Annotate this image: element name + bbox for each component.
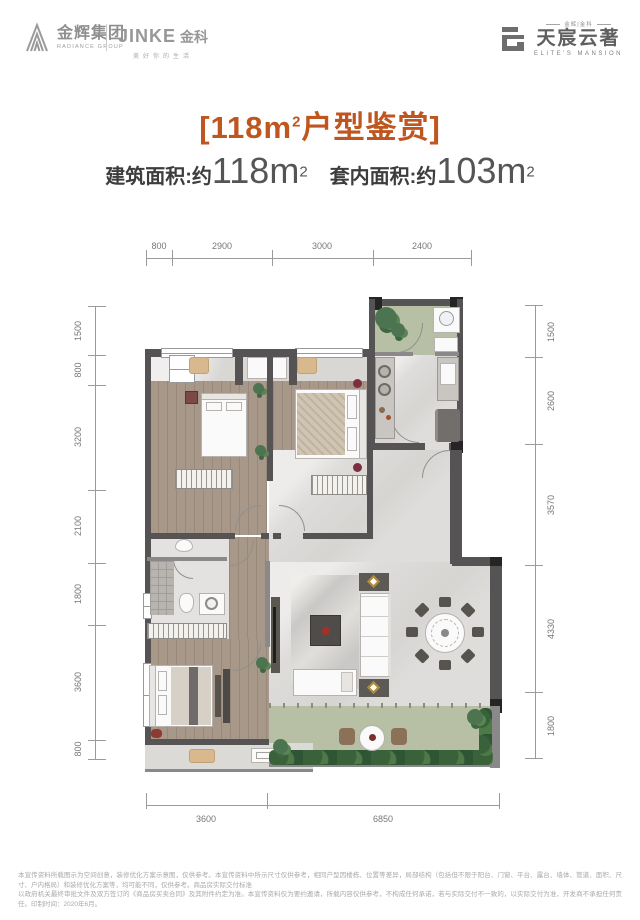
chaise-pillow xyxy=(341,672,353,692)
jinke-suffix: 金科 xyxy=(180,27,208,47)
mansion-logo: 金辉|金科 天宸云著 ELITE'S MANSION xyxy=(502,20,623,57)
bedroom2-headboard xyxy=(359,389,367,459)
terrace-chair-left xyxy=(339,728,355,745)
service-balcony-plant-small xyxy=(391,323,405,337)
dining-chair-e xyxy=(472,627,484,637)
service-sink xyxy=(434,337,458,352)
bedroom2-wardrobe xyxy=(311,475,367,495)
mansion-top-rule-right xyxy=(597,24,611,25)
living-plant xyxy=(256,657,268,669)
radiance-name: 金辉集团 xyxy=(57,25,125,42)
washing-machine-drum xyxy=(439,311,454,326)
wall-east-lower xyxy=(490,566,502,713)
counter-prop2 xyxy=(386,415,391,420)
inner-area-value: 103m xyxy=(436,150,526,191)
wall-service-divider-b xyxy=(435,352,459,356)
dim-right-1500: 1500 xyxy=(546,310,556,354)
dining-chair-s xyxy=(439,660,451,670)
disclaimer-line2: 以政府机关最终审批文件及双方签订的《商品房买卖合同》及其附件约定为准。本宣传资料… xyxy=(18,890,622,909)
niche-wall-left xyxy=(235,349,243,385)
inner-area-label: 套内面积:约 xyxy=(330,166,437,188)
wall-hall-living xyxy=(265,561,270,647)
dim-top-2900: 2900 xyxy=(200,241,244,251)
master-decor xyxy=(151,729,162,738)
dim-left-800b: 800 xyxy=(73,727,83,771)
mansion-top-rule-left xyxy=(546,24,560,25)
dim-left-3200: 3200 xyxy=(73,415,83,459)
burner-front xyxy=(378,365,391,378)
jinke-slogan: 美好你的生活 xyxy=(118,51,208,60)
master-headboard xyxy=(149,665,156,727)
terrace-chair-right xyxy=(391,728,407,745)
dim-right-4330: 4330 xyxy=(546,607,556,651)
terrace-table-decor xyxy=(369,734,376,741)
bedroom2-pillow-b xyxy=(347,427,357,451)
bedroom1-wardrobe xyxy=(175,469,233,489)
dim-left-1500: 1500 xyxy=(73,309,83,353)
dim-left-2100: 2100 xyxy=(73,504,83,548)
terrace-plant-b xyxy=(467,709,483,725)
built-area-value: 118m xyxy=(212,150,299,191)
dining-centerpiece xyxy=(441,629,449,637)
niche-wall-right xyxy=(289,349,297,385)
dim-line-top xyxy=(146,258,471,259)
disclaimer: 本宣传资料所载图示为空间创意，装修优化方案示意图，仅供参考。本宣传资料中所示尺寸… xyxy=(18,871,622,909)
mansion-brand-line: 金辉|金科 xyxy=(564,20,592,28)
dim-right-3570: 3570 xyxy=(546,483,556,527)
dim-top-2400: 2400 xyxy=(400,241,444,251)
radiance-group-logo: 金辉集团 RADIANCE GROUP xyxy=(24,22,125,52)
wall-master-south xyxy=(145,739,269,745)
wall-bedroom-divider xyxy=(267,349,273,481)
porch-edge xyxy=(145,769,313,772)
dim-left-1800: 1800 xyxy=(73,572,83,616)
dim-right-1800: 1800 xyxy=(546,704,556,748)
wall-bedroom2-south xyxy=(303,533,369,539)
bedroom1-plant2 xyxy=(255,445,266,456)
coffee-table-flowers xyxy=(322,627,330,635)
dim-top-3000: 3000 xyxy=(300,241,344,251)
dim-bottom-3600: 3600 xyxy=(184,814,228,824)
wall-stub-a xyxy=(261,533,269,539)
tv-screen xyxy=(273,607,276,663)
shower xyxy=(150,561,174,615)
dining-chair-w xyxy=(406,627,418,637)
dim-left-3600: 3600 xyxy=(73,660,83,704)
radiance-chevron-icon xyxy=(24,22,50,52)
mansion-mark-icon xyxy=(502,27,528,51)
basin xyxy=(205,597,218,610)
dining-chair-n xyxy=(439,597,451,607)
dim-line-left xyxy=(95,306,96,759)
bedroom2-pillow-a xyxy=(347,395,357,419)
bedroom2-blanket xyxy=(297,393,345,455)
dim-line-right xyxy=(535,305,536,758)
master-pillow-a xyxy=(158,671,167,691)
wall-service-divider-a xyxy=(375,352,413,356)
bedroom1-plant xyxy=(253,383,264,394)
mansion-name: 天宸云著 xyxy=(534,28,623,49)
area-summary: 建筑面积:约118m2套内面积:约103m2 xyxy=(0,150,640,192)
wall-east-upper xyxy=(450,450,462,564)
mansion-subtitle: ELITE'S MANSION xyxy=(534,51,623,57)
page-title: [118m2户型鉴赏] xyxy=(0,102,640,147)
master-wardrobe xyxy=(147,623,227,639)
kitchen-sink xyxy=(440,363,456,385)
master-pillow-b xyxy=(158,695,167,715)
counter-prop xyxy=(379,407,385,413)
dim-left-800: 800 xyxy=(73,348,83,392)
radiance-subtitle: RADIANCE GROUP xyxy=(57,44,125,50)
floor-plan xyxy=(145,295,505,772)
fridge xyxy=(435,409,460,442)
dim-right-2600: 2600 xyxy=(546,379,556,423)
flyer-page: 金辉集团 RADIANCE GROUP JINKE 金科 美好你的生活 金辉|金… xyxy=(0,0,640,920)
sofa xyxy=(360,593,391,677)
bedroom1-dresser xyxy=(185,391,198,404)
master-tv-cabinet xyxy=(223,669,230,723)
jinke-logo: JINKE 金科 美好你的生活 xyxy=(118,26,208,60)
toilet-upper xyxy=(175,539,193,552)
jinke-name: JINKE xyxy=(118,26,176,47)
terrace-rail xyxy=(269,703,490,708)
toilet-lower xyxy=(179,593,194,613)
wall-stub-b xyxy=(273,533,281,539)
dim-bottom-6850: 6850 xyxy=(361,814,405,824)
master-bench xyxy=(215,675,221,717)
bedroom1-pillow-a xyxy=(206,402,222,411)
built-area-label: 建筑面积:约 xyxy=(105,166,212,188)
bedroom2-lamp-b xyxy=(353,463,362,472)
porch-bench xyxy=(189,749,215,763)
bay-armchair-1 xyxy=(189,357,209,374)
dim-top-800: 800 xyxy=(137,241,181,251)
burner-back xyxy=(378,383,391,396)
terrace-hedge-south xyxy=(269,750,493,765)
bedroom2-lamp-a xyxy=(353,379,362,388)
terrace-plant-a xyxy=(273,739,288,754)
wall-kitchen-south-a xyxy=(369,443,425,450)
master-throw xyxy=(189,667,198,725)
header-divider xyxy=(106,24,107,51)
bay-armchair-2 xyxy=(297,357,317,374)
wall-kitchen-north xyxy=(369,299,463,306)
bedroom1-headboard xyxy=(201,393,247,400)
wall-bedroom1-south xyxy=(145,533,235,539)
bedroom1-pillow-b xyxy=(226,402,242,411)
dim-line-bottom xyxy=(146,805,499,806)
disclaimer-line1: 本宣传资料所载图示为空间创意，装修优化方案示意图，仅供参考。本宣传资料中所示尺寸… xyxy=(18,871,622,890)
